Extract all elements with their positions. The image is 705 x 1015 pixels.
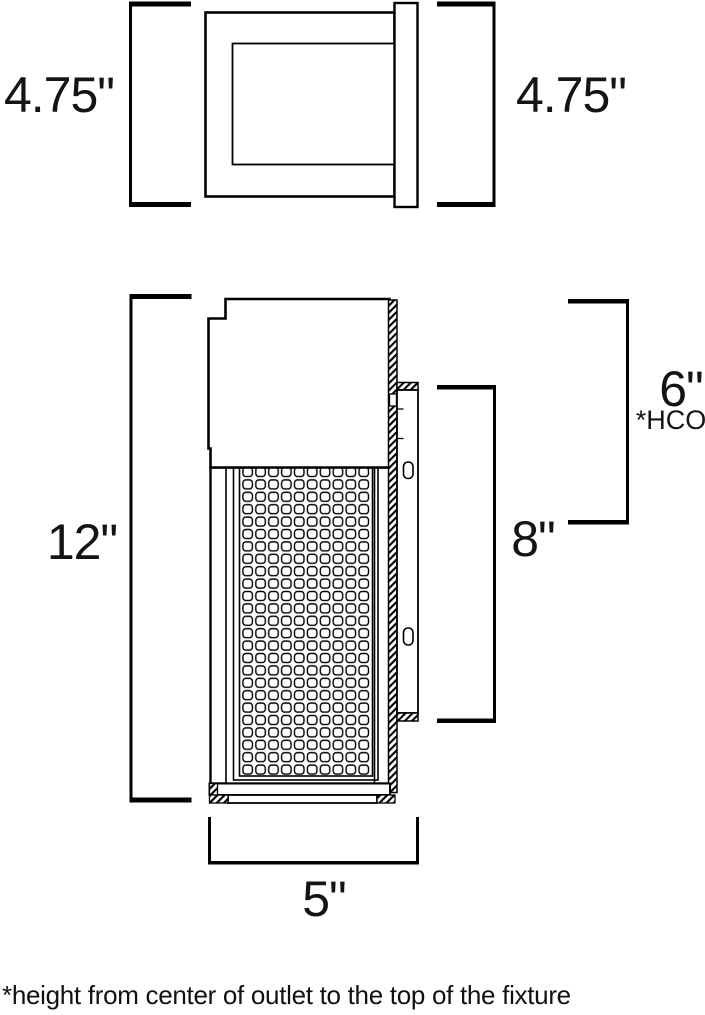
dimension-diagram: 4.75" 4.75" 12" 8" 6" *HCO 5" *height fr… (0, 0, 705, 1015)
dim-bracket-top-right (437, 3, 496, 206)
top-view-inner-body (233, 44, 396, 165)
dim-label-top-view-left: 4.75" (0, 70, 118, 120)
backplate-bottom-cap (397, 713, 418, 721)
dim-bracket-6in (568, 300, 629, 524)
dim-bracket-top-left (129, 3, 191, 206)
top-view (129, 3, 496, 207)
dim-bracket-5in (208, 817, 419, 864)
wall-strip-hatched (389, 300, 398, 793)
footnote-text: *height from center of outlet to the top… (2, 981, 571, 1011)
bottom-band-lower-hatch-right (377, 795, 395, 803)
bottom-band-lower (228, 795, 377, 803)
dim-label-fixture-width: 5" (291, 874, 357, 924)
dim-bracket-12in (130, 295, 192, 802)
bottom-band-upper (210, 784, 391, 796)
line-art (0, 0, 705, 1015)
dim-bracket-8in (437, 386, 496, 723)
screw-slot-upper (404, 462, 414, 479)
dim-label-fixture-height: 12" (40, 517, 124, 567)
bottom-band-lower-hatch-left (210, 795, 229, 803)
top-cap (209, 299, 390, 468)
dim-label-hco-abbrev: *HCO (634, 407, 705, 434)
top-view-wall-plate (395, 3, 418, 207)
dim-label-top-view-right: 4.75" (511, 70, 631, 120)
wall-strip-slot (390, 394, 397, 406)
bottom-band-upper-hatch (210, 784, 218, 796)
front-view (130, 295, 630, 864)
backplate-top-cap (397, 383, 418, 391)
screw-slot-lower (404, 628, 414, 645)
dim-label-backplate-height: 8" (500, 514, 566, 564)
perforated-glass (242, 466, 371, 776)
